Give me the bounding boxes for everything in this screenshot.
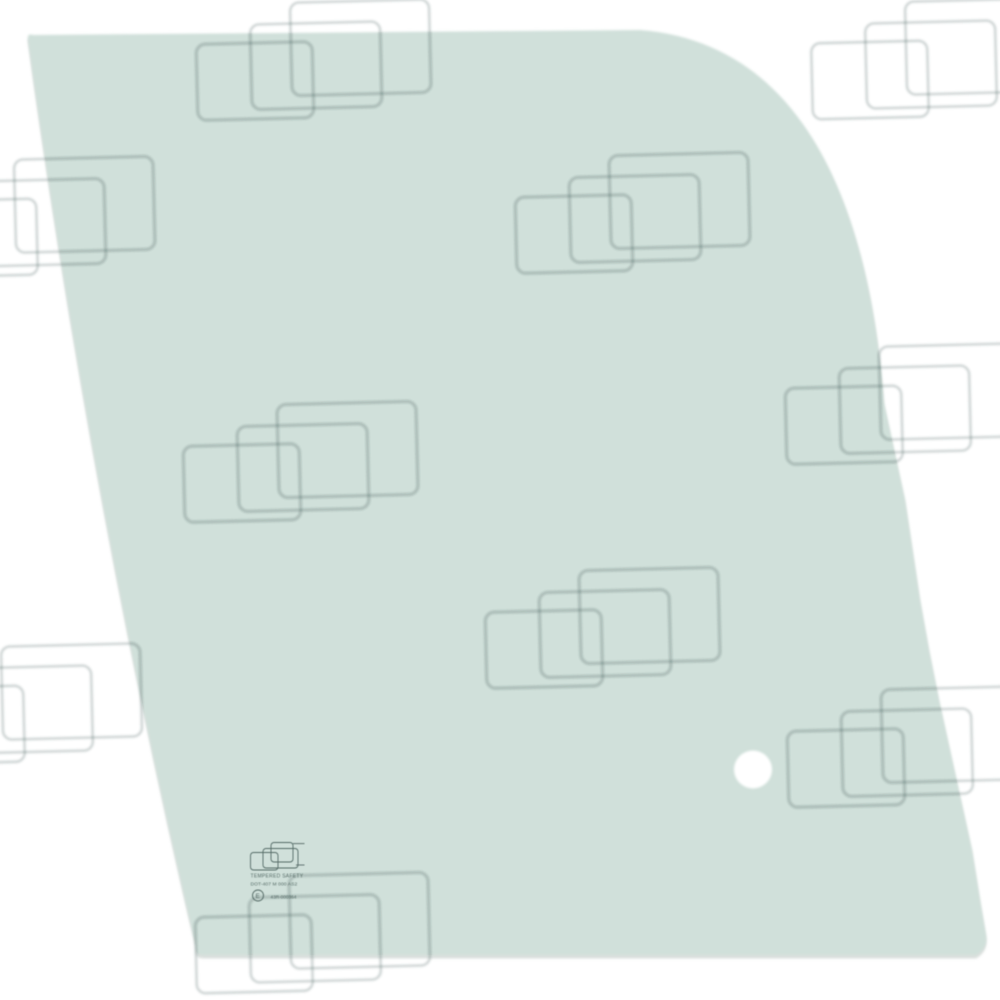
svg-text:43R-000364: 43R-000364 [271,894,297,899]
svg-text:E: E [256,893,260,900]
svg-text:TEMPERED SAFETY: TEMPERED SAFETY [251,873,304,879]
svg-text:DOT-407 M 000 AS2: DOT-407 M 000 AS2 [251,881,298,887]
